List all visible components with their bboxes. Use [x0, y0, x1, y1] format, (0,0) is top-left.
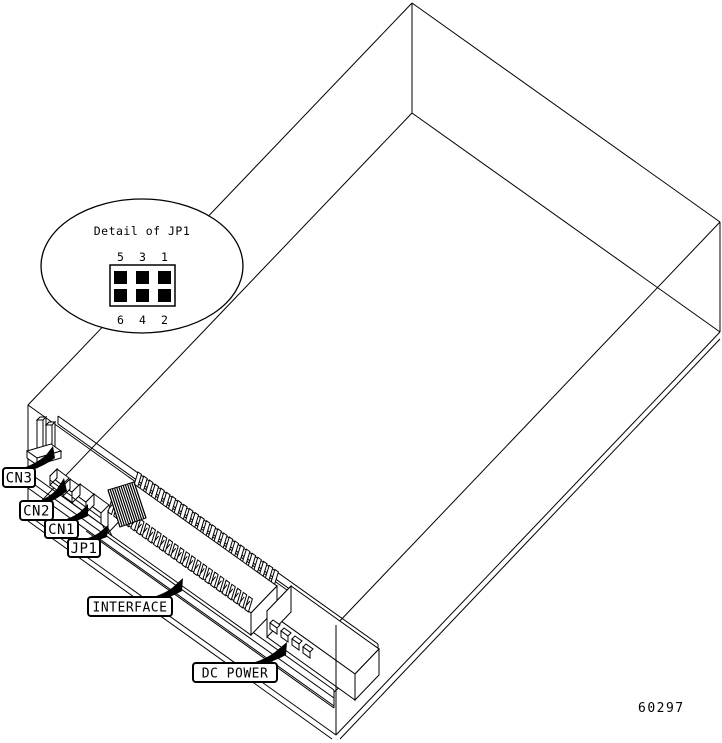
callout-cn1-label: CN1 — [48, 522, 75, 538]
callout-interface-label: INTERFACE — [93, 601, 168, 616]
detail-pin-3: 3 — [139, 250, 146, 264]
detail-pin-2: 2 — [161, 313, 168, 327]
detail-title: Detail of JP1 — [94, 224, 191, 238]
chassis-outline — [28, 3, 720, 739]
detail-pin-5: 5 — [117, 250, 124, 264]
connector-dc-power — [267, 586, 379, 700]
detail-pin-4: 4 — [139, 313, 146, 327]
callout-dc-power-label: DC POWER — [202, 667, 269, 682]
detail-pin-1: 1 — [161, 250, 168, 264]
callout-interface: INTERFACE — [88, 578, 183, 616]
callout-jp1-label: JP1 — [71, 541, 98, 557]
callout-cn3-label: CN3 — [6, 471, 33, 487]
drive-assembly — [27, 416, 379, 735]
callout-cn2-label: CN2 — [23, 504, 50, 520]
technical-illustration: CN3 CN2 CN1 JP1 INTERFACE DC POWER — [0, 0, 722, 743]
figure-part-number: 60297 — [638, 701, 685, 716]
jp1-detail-bubble: Detail of JP1 5 3 1 6 4 2 — [41, 199, 243, 333]
detail-pin-6: 6 — [117, 313, 124, 327]
callout-dc-power: DC POWER — [193, 642, 287, 682]
